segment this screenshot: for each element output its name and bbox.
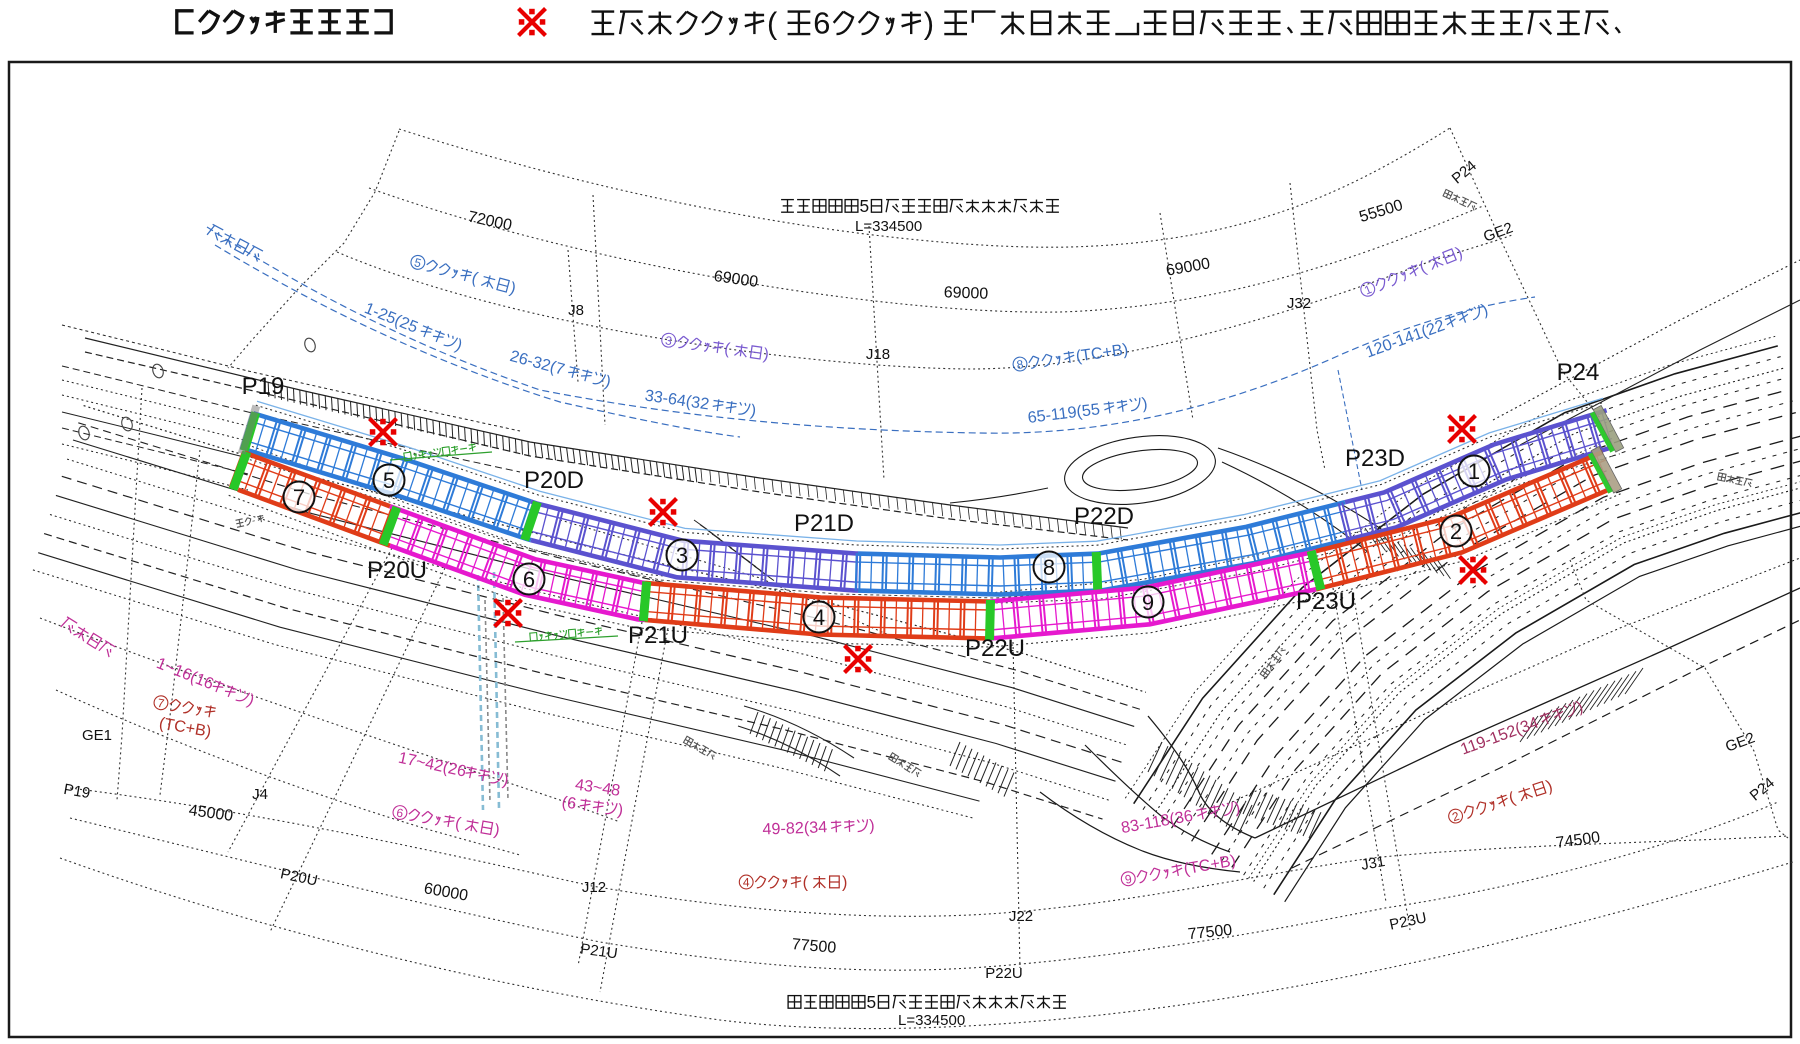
svg-text:4: 4 bbox=[813, 605, 825, 630]
svg-text:): ) bbox=[869, 817, 875, 835]
svg-text:J32: J32 bbox=[1287, 295, 1311, 312]
svg-text:P23U: P23U bbox=[1296, 588, 1356, 615]
svg-text:P23D: P23D bbox=[1345, 445, 1405, 472]
svg-text:1: 1 bbox=[1468, 459, 1480, 484]
svg-text:P22U: P22U bbox=[985, 965, 1023, 982]
svg-text:3: 3 bbox=[676, 543, 688, 568]
svg-text:J12: J12 bbox=[582, 879, 606, 896]
svg-text:J4: J4 bbox=[252, 786, 268, 803]
svg-text:): ) bbox=[842, 874, 847, 892]
svg-text:(: ( bbox=[803, 874, 809, 892]
svg-text:GE1: GE1 bbox=[82, 727, 112, 744]
svg-text:49-82(34: 49-82(34 bbox=[762, 818, 827, 838]
svg-text:69000: 69000 bbox=[943, 284, 988, 303]
svg-text:(6: (6 bbox=[561, 793, 578, 813]
svg-text:7: 7 bbox=[293, 485, 305, 510]
svg-text:P22D: P22D bbox=[1074, 503, 1134, 530]
svg-text:(: ( bbox=[767, 6, 778, 41]
svg-text:6: 6 bbox=[813, 6, 830, 41]
svg-text:P21D: P21D bbox=[794, 510, 854, 537]
svg-text:6: 6 bbox=[523, 567, 535, 592]
svg-text:5: 5 bbox=[860, 196, 870, 216]
svg-text:5: 5 bbox=[867, 992, 877, 1012]
svg-text:L=334500: L=334500 bbox=[855, 218, 922, 235]
svg-text:J8: J8 bbox=[568, 302, 584, 319]
svg-text:J22: J22 bbox=[1009, 908, 1033, 925]
svg-text:P20D: P20D bbox=[524, 467, 584, 494]
svg-text:2: 2 bbox=[1450, 519, 1462, 544]
svg-text:4: 4 bbox=[743, 876, 750, 890]
svg-text:L=334500: L=334500 bbox=[898, 1012, 965, 1029]
svg-text:P21U: P21U bbox=[628, 622, 688, 649]
svg-text:J18: J18 bbox=[866, 346, 890, 363]
svg-text:P24: P24 bbox=[1557, 359, 1600, 386]
svg-text:): ) bbox=[924, 6, 934, 41]
svg-text:P19: P19 bbox=[242, 373, 285, 400]
svg-text:P22U: P22U bbox=[965, 635, 1025, 662]
svg-text:5: 5 bbox=[383, 468, 395, 493]
svg-text:8: 8 bbox=[1043, 555, 1055, 580]
svg-text:9: 9 bbox=[1142, 590, 1154, 615]
svg-text:P20U: P20U bbox=[367, 557, 427, 584]
